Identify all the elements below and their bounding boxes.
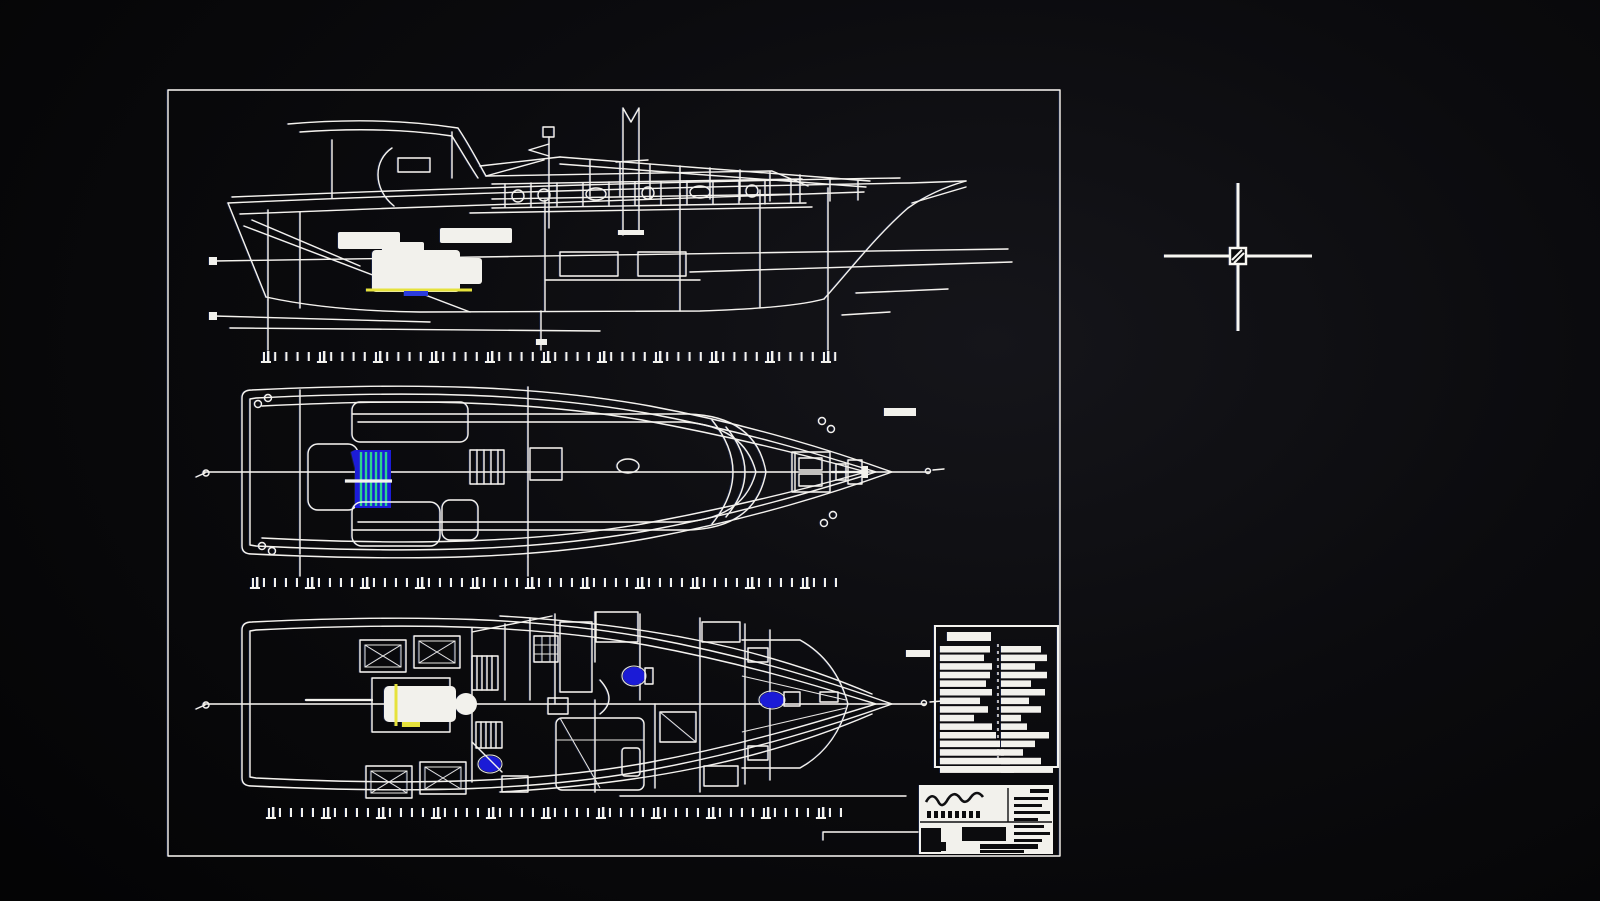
companionway-stairs-icon (345, 450, 392, 508)
profile-view (209, 108, 1012, 350)
title-block (920, 786, 1052, 853)
chair (442, 500, 478, 540)
toilet-icon-2 (472, 742, 528, 792)
ladder-icon (470, 450, 504, 484)
station-tick-rows (250, 351, 842, 819)
deck-plan-view (196, 386, 944, 576)
label-blob (906, 650, 930, 657)
mast (616, 108, 648, 235)
cad-viewport[interactable] (0, 0, 1600, 901)
crosshair-cursor (1164, 183, 1312, 331)
helm-seat (308, 444, 358, 510)
arrangement-view (196, 612, 942, 798)
deck-hatch (530, 448, 562, 480)
particulars-table (935, 626, 1058, 773)
leader-line (823, 832, 918, 840)
toilet-icon-3 (759, 691, 800, 709)
engine-icon (338, 228, 512, 296)
sofa (352, 502, 440, 546)
superstructure (288, 121, 812, 213)
label-blob (884, 408, 916, 416)
table (548, 698, 568, 714)
antenna (529, 127, 554, 228)
engine-plan-icon (306, 678, 477, 732)
toilet-icon-1 (600, 666, 653, 714)
